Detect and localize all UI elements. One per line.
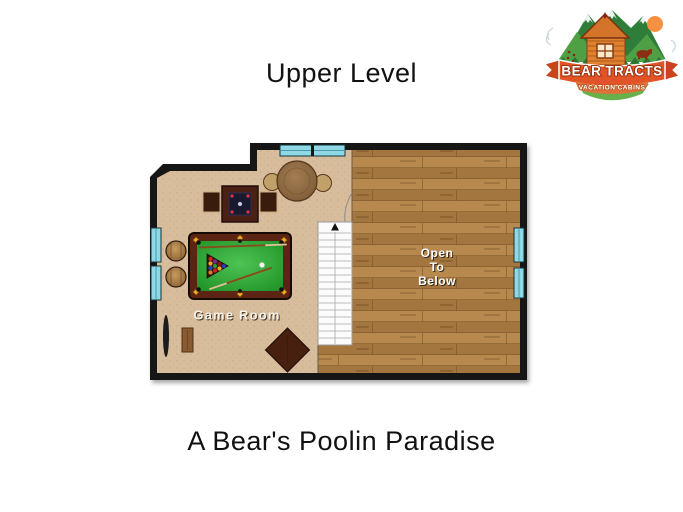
side-table bbox=[182, 328, 193, 352]
window-right-lower bbox=[514, 268, 524, 298]
wall-decor bbox=[163, 315, 169, 357]
brand-name: BEAR TRACTS bbox=[561, 64, 662, 79]
cloud-swirl-icon bbox=[671, 40, 675, 52]
page-caption: A Bear's Poolin Paradise bbox=[0, 426, 683, 457]
bear-tracts-logo: BEAR TRACTS VACATION CABINS bbox=[543, 2, 681, 108]
brand-tagline: VACATION CABINS bbox=[579, 85, 646, 92]
sun-icon bbox=[647, 16, 663, 32]
window-left-upper bbox=[151, 228, 161, 262]
game-room-label: Game Room Game Room bbox=[193, 308, 281, 324]
pool-table bbox=[189, 233, 291, 299]
staircase bbox=[318, 222, 352, 345]
window-left-lower bbox=[151, 266, 161, 300]
floor-plan: Game Room Game Room Open Open To To Belo… bbox=[140, 135, 535, 395]
svg-text:Game Room: Game Room bbox=[193, 308, 280, 323]
svg-text:To: To bbox=[430, 260, 445, 274]
window-right-upper bbox=[514, 228, 524, 262]
cloud-swirl-icon bbox=[546, 28, 553, 45]
cue-ball bbox=[259, 262, 264, 267]
svg-text:Below: Below bbox=[418, 274, 456, 288]
window-top bbox=[280, 145, 345, 156]
svg-text:Open: Open bbox=[421, 246, 454, 260]
page: Upper Level bbox=[0, 0, 683, 512]
